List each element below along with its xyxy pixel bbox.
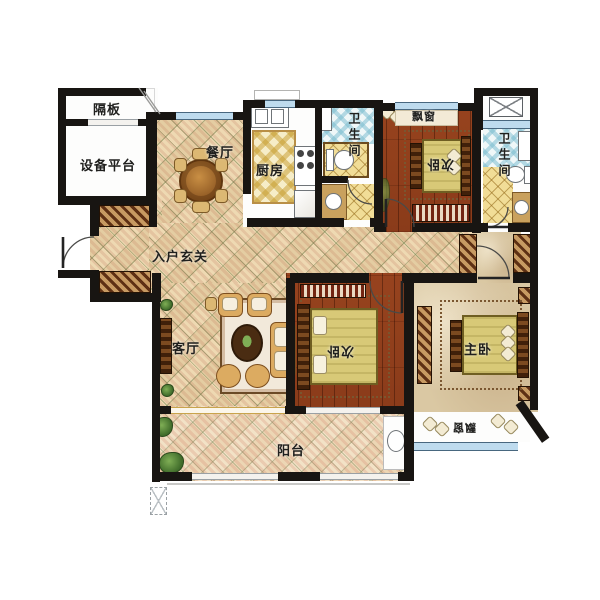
- master-dresser: [417, 306, 432, 384]
- wall-segment: [380, 406, 406, 414]
- wall-segment: [290, 273, 369, 283]
- tv-cabinet: [160, 318, 172, 374]
- sofa-chair: [216, 364, 241, 388]
- dining-chair: [215, 189, 228, 203]
- label-dining: 餐厅: [206, 142, 234, 161]
- stove-burner: [297, 162, 304, 169]
- master-bed-bench: [450, 320, 462, 372]
- wall-segment: [315, 100, 322, 226]
- wall-segment: [398, 472, 414, 481]
- wall-segment: [474, 223, 488, 232]
- label-equipment: 设备平台: [80, 155, 136, 174]
- living-balcony-slider: [171, 407, 285, 414]
- wall-segment: [58, 88, 146, 96]
- label-bay-top: 飘窗: [412, 108, 436, 124]
- dining-window: [176, 112, 233, 120]
- label-living: 客厅: [172, 338, 200, 357]
- label-bay-bottom: 飘窗: [452, 420, 476, 436]
- label-bedroom-top: 次卧: [426, 156, 454, 175]
- wall-segment: [513, 273, 538, 283]
- entry-cabinet: [99, 271, 151, 293]
- wall-segment: [412, 223, 476, 232]
- side-table: [205, 297, 217, 311]
- label-balcony: 阳台: [277, 440, 305, 459]
- balcony-rail-line: [167, 483, 410, 485]
- wall-segment: [58, 270, 91, 278]
- duct-shaft: [489, 97, 523, 117]
- wall-segment: [374, 100, 383, 232]
- bathroom1-basin: [325, 193, 342, 210]
- coffee-table: [231, 324, 263, 362]
- wall-segment: [318, 176, 348, 183]
- wall-segment: [243, 100, 251, 194]
- stove-burner: [297, 150, 304, 157]
- kitchen-ledge: [254, 90, 300, 100]
- wall-segment: [243, 100, 383, 108]
- label-bathroom2: 卫生间: [496, 132, 513, 180]
- wall-segment: [58, 88, 66, 205]
- wall-segment: [474, 88, 538, 96]
- master-wardrobe: [459, 234, 477, 276]
- bedroom-mid-wardrobe: [300, 284, 366, 298]
- label-master: 主卧: [464, 339, 492, 358]
- label-foyer: 入户玄关: [152, 246, 208, 265]
- master-headboard: [517, 312, 529, 378]
- bedroom-mid-window: [306, 407, 380, 414]
- dining-chair: [174, 189, 187, 203]
- balcony-utility-sink: [387, 430, 405, 452]
- sofa-cushion: [222, 297, 238, 311]
- wall-segment: [149, 112, 157, 227]
- bathroom1-yellow-tile: [347, 184, 374, 220]
- wall-segment: [152, 298, 160, 412]
- platform-opening: [88, 119, 138, 126]
- bedroom-top-bench: [410, 143, 422, 189]
- sofa-chair: [245, 364, 270, 388]
- label-bathroom1: 卫生间: [346, 112, 363, 160]
- dining-chair: [174, 158, 187, 172]
- label-bedroom-mid: 次卧: [326, 343, 354, 362]
- dining-chair: [192, 201, 210, 213]
- wall-segment: [149, 112, 176, 120]
- wall-segment: [152, 472, 192, 481]
- pillow: [313, 355, 327, 374]
- bedroom-top-headboard: [461, 136, 471, 196]
- drainpipe-shaft: [150, 487, 167, 515]
- stove-burner: [307, 150, 314, 157]
- bathroom2-window: [483, 120, 530, 129]
- bathroom2-basin: [514, 200, 529, 215]
- bay-window-bottom-glass: [414, 442, 518, 451]
- wall-segment: [404, 278, 414, 481]
- balcony-window: [320, 473, 398, 480]
- wall-segment: [152, 406, 160, 482]
- wall-segment: [90, 196, 99, 236]
- kitchen-sink-basin-left: [255, 109, 268, 124]
- wall-segment: [278, 472, 320, 481]
- entry-cabinet: [99, 205, 151, 227]
- toilet-tank: [326, 149, 334, 171]
- balcony-window: [192, 473, 278, 480]
- bedroom-top-wardrobe: [412, 204, 470, 222]
- wall-segment: [508, 223, 538, 232]
- pillow: [313, 316, 327, 335]
- wall-segment: [374, 223, 386, 232]
- floor-plan: 隔板 设备平台 餐厅 厨房 卫生间 飘窗 次卧 卫生间 入户玄关 客厅 次卧 主…: [0, 0, 600, 600]
- label-partition: 隔板: [93, 99, 121, 118]
- sofa-cushion: [251, 297, 267, 311]
- wall-segment: [286, 278, 295, 412]
- label-kitchen: 厨房: [256, 160, 284, 179]
- wall-segment: [58, 119, 88, 126]
- stove-burner: [307, 162, 314, 169]
- wall-segment: [247, 218, 344, 227]
- wall-segment: [474, 88, 483, 130]
- wall-segment: [58, 196, 155, 205]
- kitchen-window: [265, 100, 295, 108]
- wall-segment: [285, 406, 306, 414]
- wall-segment: [530, 88, 538, 410]
- wall-segment: [98, 293, 160, 302]
- bedroom-mid-headboard: [297, 304, 310, 390]
- kitchen-sink-basin-right: [271, 109, 284, 124]
